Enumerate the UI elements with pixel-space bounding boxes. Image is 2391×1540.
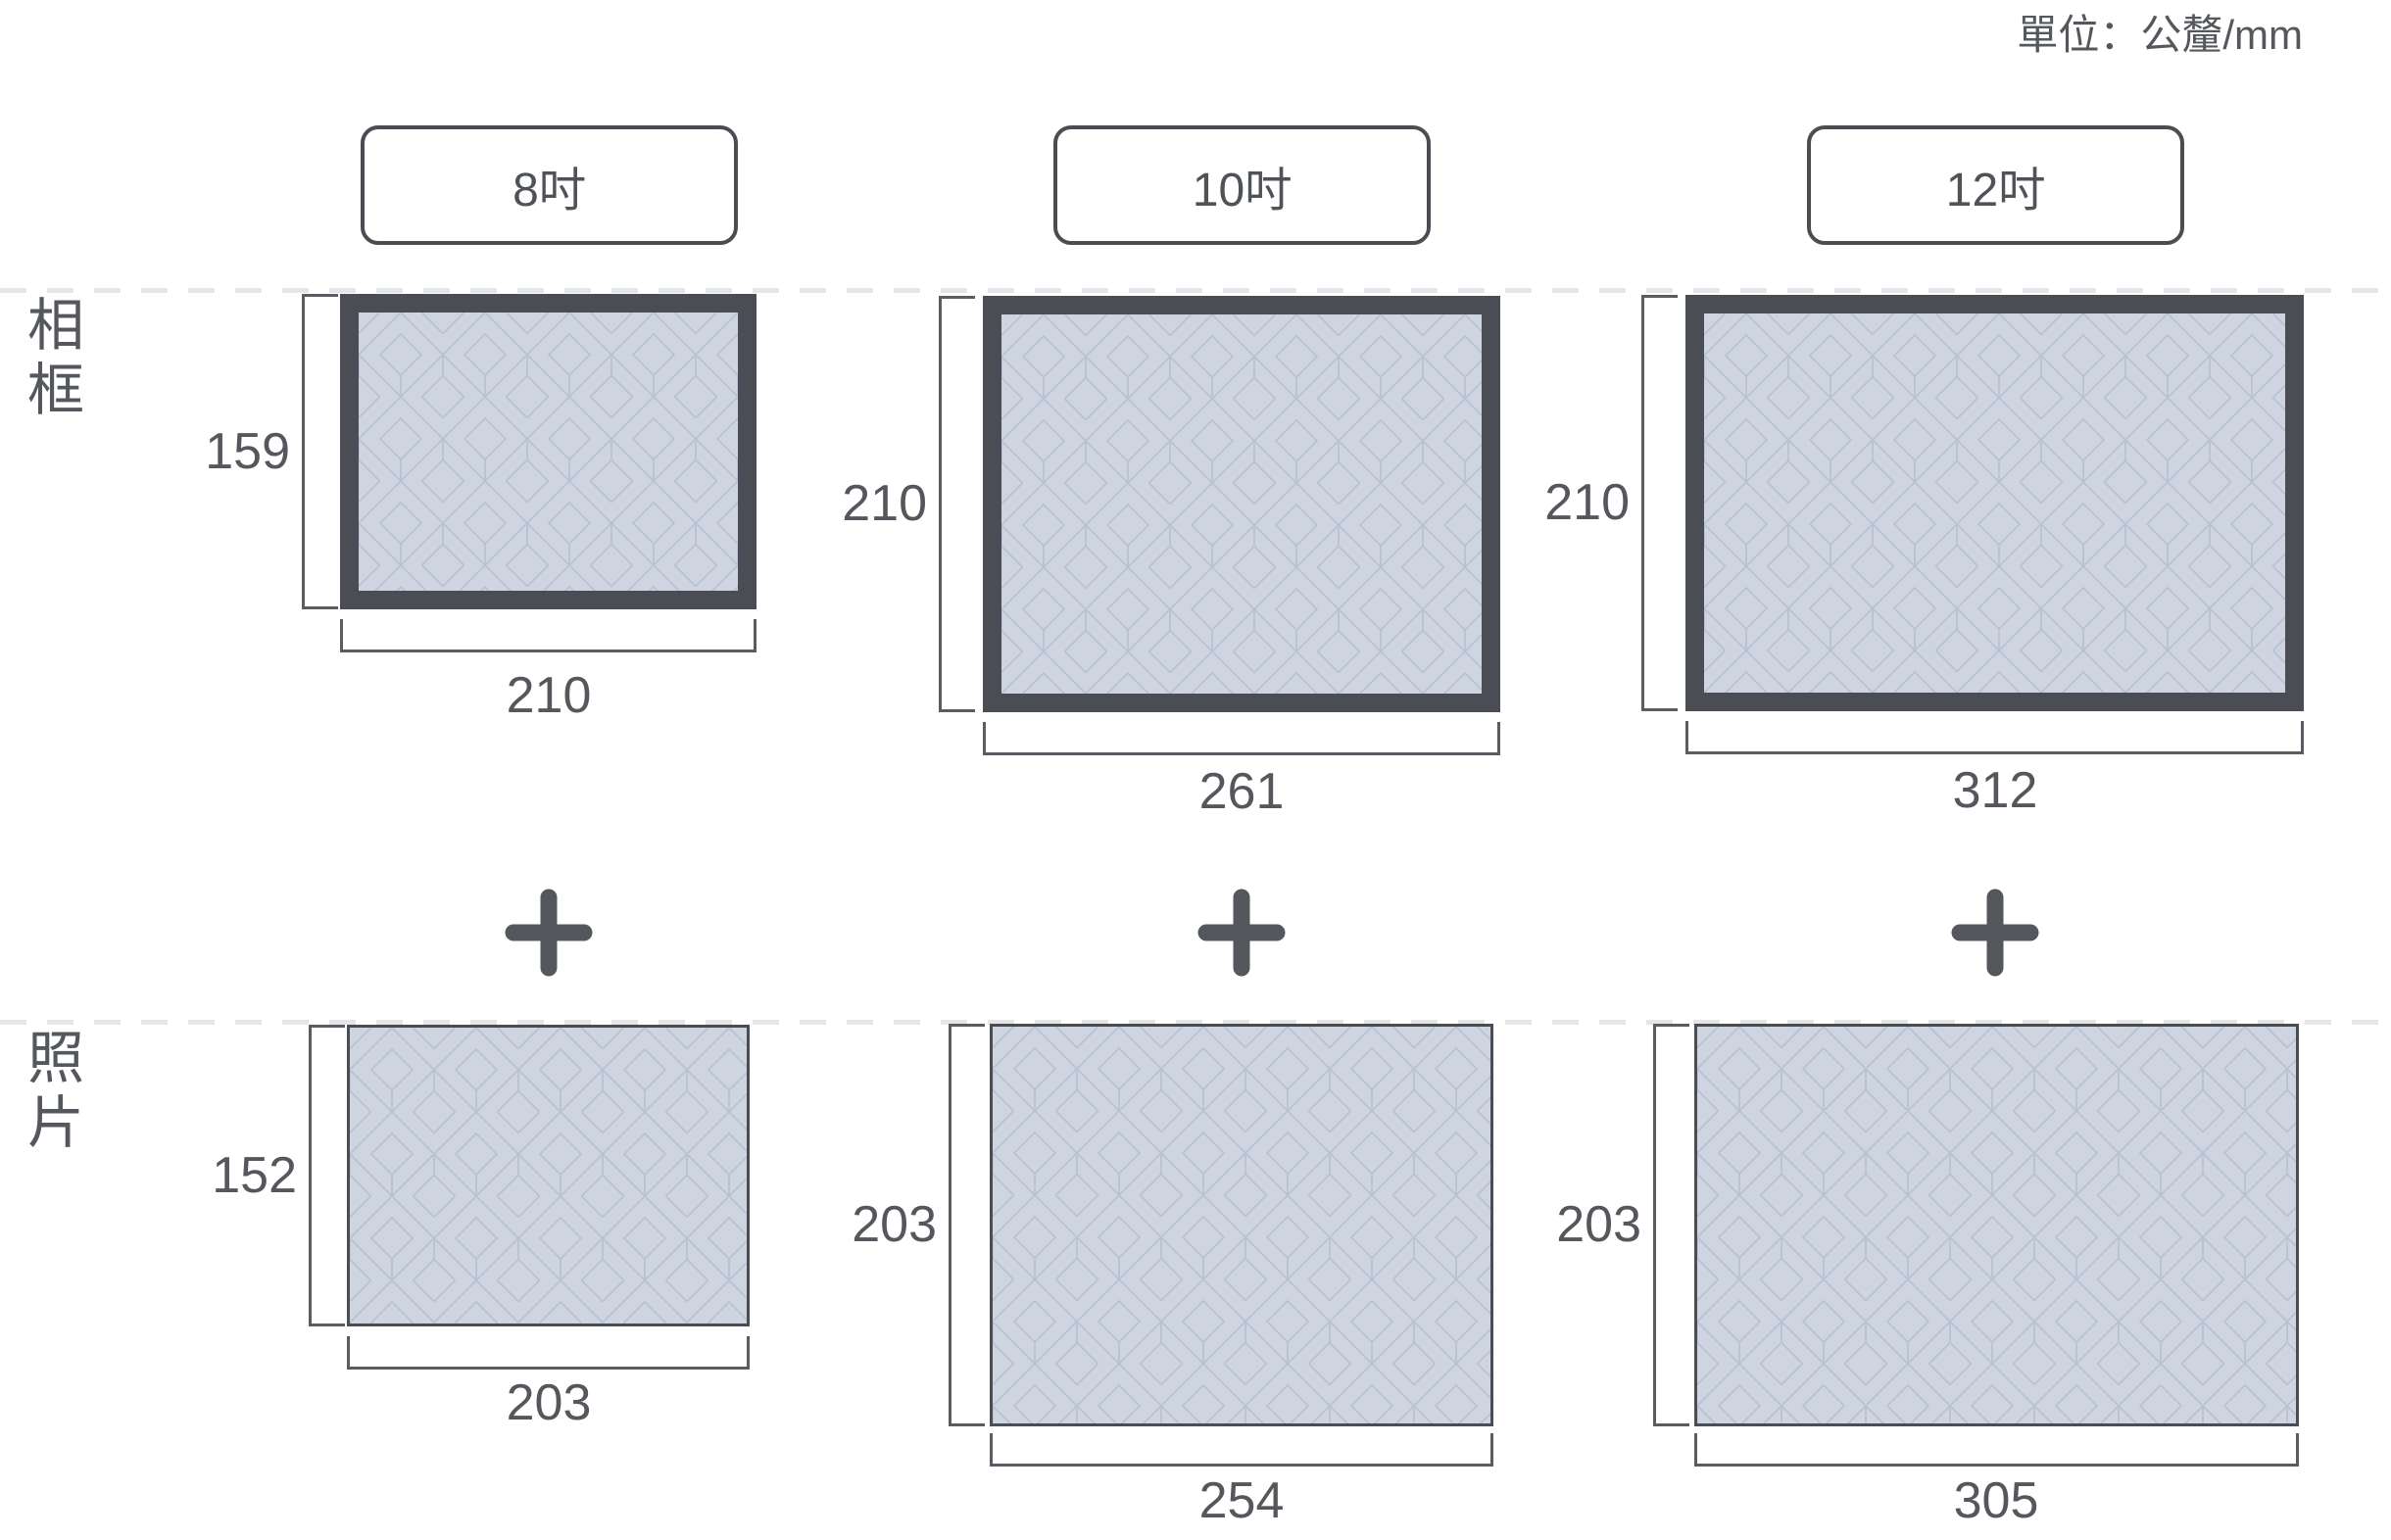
plus-icon [1951,889,2039,977]
frame-8in-width-value: 210 [441,664,657,727]
frame-12in-height-value: 210 [1483,471,1630,534]
photo-12in-width-value: 305 [1888,1469,2104,1532]
photo-8in-height-bracket [309,1025,345,1326]
size-badge-8in: 8吋 [361,125,738,245]
photo-12in-height-bracket [1653,1024,1689,1426]
photo-row-label: 照片 [27,1027,90,1156]
photo-8in-pattern [350,1028,747,1323]
photo-8in-height-value: 152 [150,1144,297,1207]
photo-10in-width-bracket [990,1433,1493,1467]
photo-12in-width-bracket [1694,1433,2299,1467]
photo-12in [1694,1024,2299,1426]
photo-8in [347,1025,750,1326]
size-badge-12in: 12吋 [1807,125,2184,245]
frame-row-label: 相框 [27,294,90,423]
photo-12in-pattern [1697,1027,2296,1423]
frame-size-diagram: 單位：公釐/mm 相框 照片 8吋 10吋 12吋 159 210 152 20… [0,0,2391,1540]
frame-12in-width-bracket [1685,721,2304,754]
frame-10in-height-bracket [939,296,975,712]
frame-12in-height-bracket [1641,295,1678,711]
frame-8in-height-value: 159 [143,420,290,483]
frame-8in [340,294,756,609]
frame-8in-pattern [359,313,738,591]
frame-12in [1685,295,2304,711]
frame-10in-height-value: 210 [780,472,927,535]
photo-8in-width-bracket [347,1336,750,1370]
frame-12in-pattern [1704,313,2285,693]
photo-10in-pattern [993,1027,1490,1423]
size-badge-12in-label: 12吋 [1946,151,2045,219]
size-badge-10in: 10吋 [1053,125,1431,245]
photo-8in-width-value: 203 [441,1372,657,1434]
plus-icon [505,889,593,977]
plus-icon [1197,889,1286,977]
frame-10in-width-bracket [983,722,1500,755]
photo-10in-height-bracket [949,1024,985,1426]
frame-12in-width-value: 312 [1887,759,2103,822]
photo-10in-width-value: 254 [1134,1469,1349,1532]
photo-10in [990,1024,1493,1426]
size-badge-8in-label: 8吋 [512,151,586,219]
frame-10in-pattern [1001,314,1482,694]
frame-8in-height-bracket [302,294,338,609]
size-badge-10in-label: 10吋 [1193,151,1292,219]
frame-8in-width-bracket [340,619,756,652]
photo-12in-height-value: 203 [1494,1193,1641,1256]
frame-row-dashed-line [0,288,2391,293]
frame-10in [983,296,1500,712]
unit-label: 單位：公釐/mm [2017,2,2303,62]
photo-10in-height-value: 203 [790,1193,937,1256]
frame-10in-width-value: 261 [1134,760,1349,823]
